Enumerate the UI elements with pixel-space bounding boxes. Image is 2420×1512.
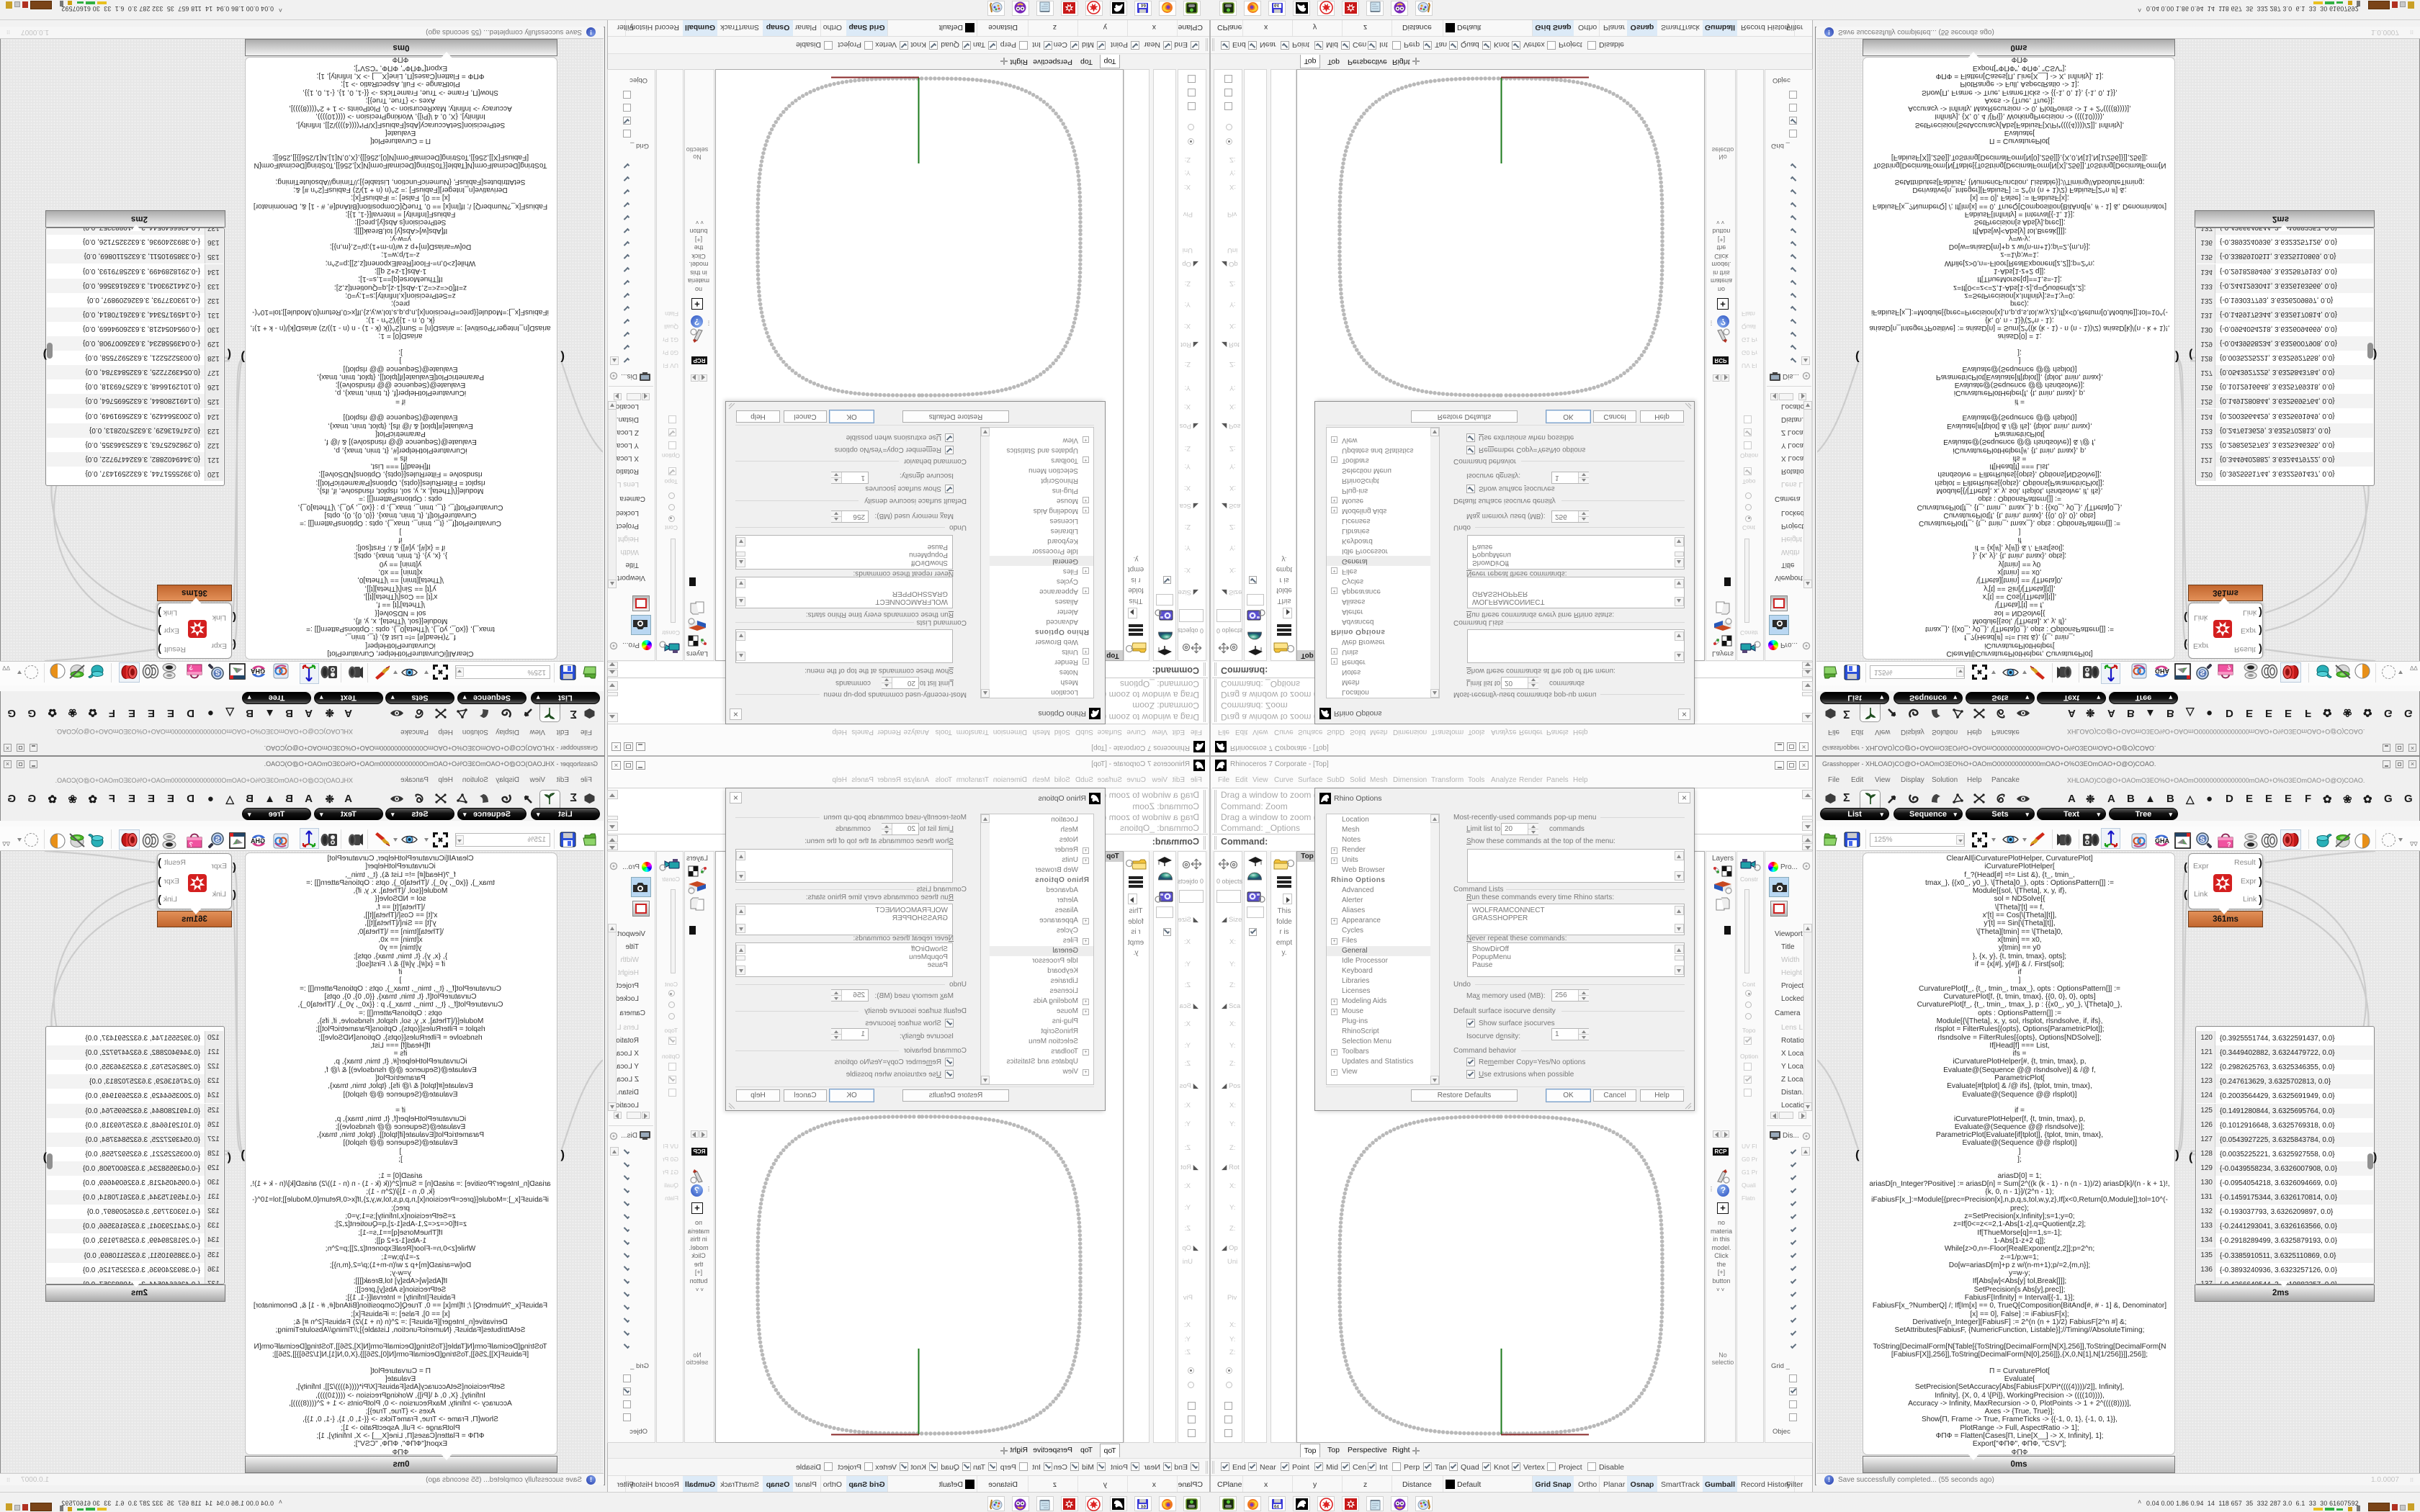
svg-text:S: S	[2200, 668, 2205, 676]
svg-text:64: 64	[1274, 1506, 1279, 1510]
svg-text:64: 64	[1274, 3, 1279, 7]
svg-text:S: S	[215, 668, 220, 676]
svg-text:?: ?	[189, 664, 194, 671]
svg-text:64: 64	[1141, 1506, 1146, 1510]
svg-text:S: S	[215, 836, 220, 844]
svg-text:64: 64	[1141, 3, 1146, 7]
svg-text:S: S	[2200, 836, 2205, 844]
svg-text:L: L	[233, 839, 237, 845]
svg-text:L: L	[233, 667, 237, 673]
svg-text:GHA: GHA	[251, 837, 266, 845]
svg-text:?: ?	[189, 841, 194, 848]
svg-text:GHA: GHA	[2155, 837, 2170, 845]
svg-text:L: L	[2183, 667, 2187, 673]
svg-text:?: ?	[2227, 841, 2231, 848]
svg-text:GHA: GHA	[251, 667, 266, 675]
svg-text:?: ?	[2227, 664, 2231, 671]
svg-text:GHA: GHA	[2155, 667, 2170, 675]
svg-text:L: L	[2183, 839, 2187, 845]
